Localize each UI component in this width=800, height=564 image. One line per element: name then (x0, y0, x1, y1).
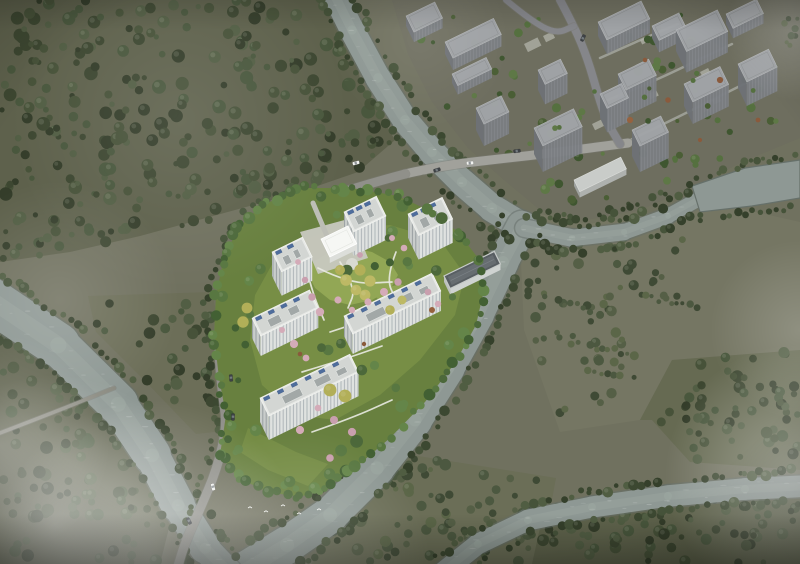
vignette (0, 0, 800, 564)
aerial-site-rendering (0, 0, 800, 564)
rendering-stage (0, 0, 800, 564)
